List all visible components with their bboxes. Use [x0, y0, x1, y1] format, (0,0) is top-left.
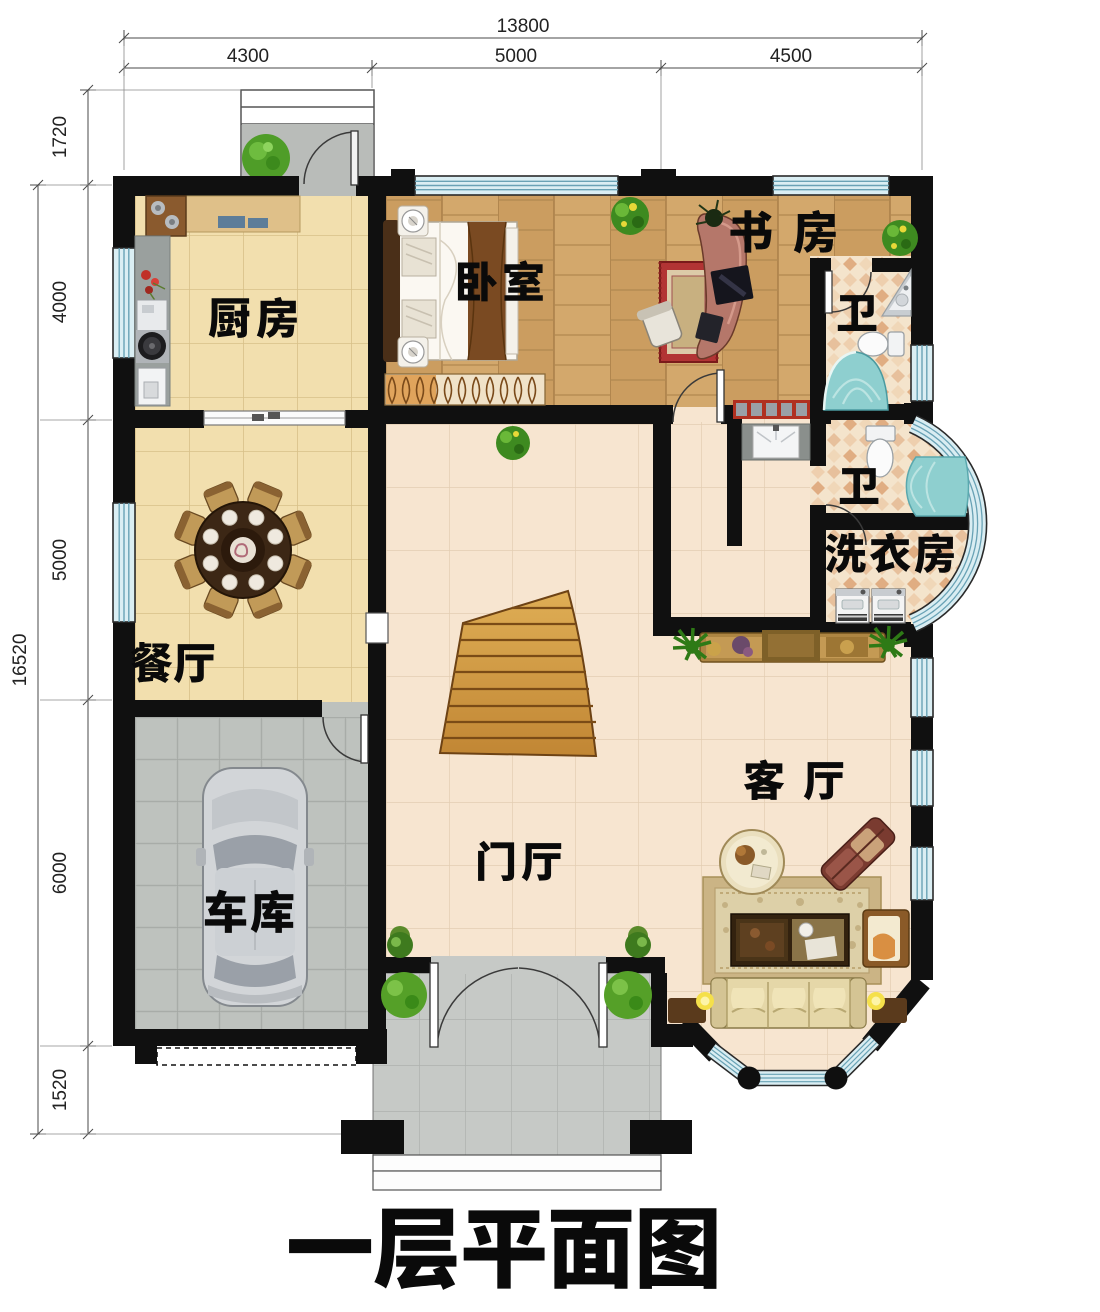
svg-text:1520: 1520 [50, 1069, 71, 1111]
svg-text:13800: 13800 [497, 16, 550, 37]
svg-text:4300: 4300 [227, 46, 269, 67]
svg-text:6000: 6000 [50, 852, 71, 894]
svg-text:5000: 5000 [495, 46, 537, 67]
svg-text:4000: 4000 [50, 281, 71, 323]
svg-text:1720: 1720 [50, 116, 71, 158]
svg-text:5000: 5000 [50, 539, 71, 581]
svg-text:16520: 16520 [10, 634, 31, 687]
svg-text:4500: 4500 [770, 46, 812, 67]
